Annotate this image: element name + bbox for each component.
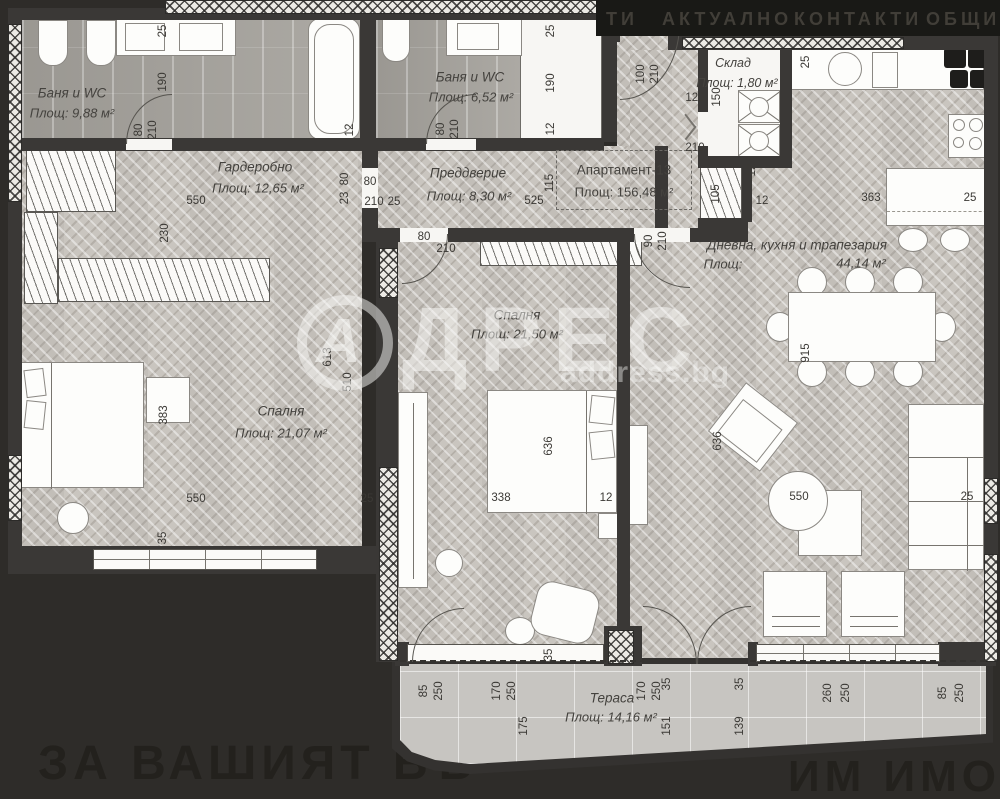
bath2-shower-area: [520, 16, 602, 142]
room-area-bath1: Площ: 9,88 м²: [30, 106, 114, 121]
cooktop-module: [872, 52, 898, 88]
wall: [780, 48, 792, 160]
tv-unit: [627, 425, 648, 525]
lounge-chair: [763, 571, 827, 637]
room-area-terrace: Площ: 14,16 м²: [565, 710, 657, 725]
nav-item-partial[interactable]: ТИ: [606, 9, 638, 30]
window-mullion: [895, 645, 896, 661]
stool: [435, 549, 463, 577]
window-mullion: [261, 550, 262, 569]
terrace-floor: [400, 664, 986, 764]
bed: [20, 362, 144, 488]
closet-long-rack: [58, 258, 270, 302]
bed-line: [51, 363, 52, 489]
wall: [742, 166, 752, 222]
drum: [749, 97, 769, 117]
room-label-bath1: Баня и WC: [38, 86, 106, 101]
pillow: [589, 430, 616, 460]
room-label-living: Дневна, кухня и трапезария: [707, 238, 887, 253]
fridge-icon: [944, 48, 966, 68]
sofa-line: [909, 457, 985, 458]
toilet: [38, 20, 68, 66]
shaft-hatch: [984, 554, 998, 662]
site-nav: ТИ АКТУАЛНО КОНТАКТИ ОБЩИ У: [596, 0, 1000, 36]
apartment-area: Площ: 156,48 м²: [575, 185, 674, 200]
shaft-hatch: [379, 248, 398, 298]
toilet: [382, 18, 410, 62]
pillow: [589, 395, 616, 425]
vanity-double: [116, 16, 236, 56]
shaft-hatch: [984, 478, 998, 524]
apartment-summary-box: [556, 150, 692, 210]
island-line: [887, 211, 997, 212]
shaft-hatch: [8, 455, 22, 521]
window: [93, 549, 317, 570]
nav-item-kontakti[interactable]: КОНТАКТИ: [794, 9, 922, 30]
window-mullion: [149, 550, 150, 569]
floorplan-page: ЗА ВАШИЯТ БЪ ИМ ИМОТ!: [0, 0, 1000, 799]
sofa-line: [909, 501, 985, 502]
apartment-name: Апартамент-13: [577, 163, 672, 178]
room-label-wardrobe: Гардеробно: [218, 160, 292, 175]
kitchen-island: [886, 168, 996, 226]
room-label-terrace: Тераса: [590, 691, 635, 706]
bathtub: [308, 18, 360, 140]
bar-stool: [898, 228, 928, 252]
sink-basin: [179, 23, 223, 51]
room-label-bedroom1: Спалня: [258, 404, 305, 419]
sofa: [908, 404, 984, 570]
wall: [360, 8, 376, 148]
burner: [953, 137, 964, 148]
wall: [698, 218, 748, 230]
shaft-hatch: [682, 37, 904, 49]
fridge-icon: [950, 70, 968, 88]
room-area-hall: Площ: 8,30 м²: [427, 189, 511, 204]
bar-stool: [940, 228, 970, 252]
dimension-label: 25: [361, 493, 374, 505]
closet-unit: [24, 212, 58, 304]
sink-basin: [125, 23, 165, 51]
pillow: [23, 368, 46, 398]
wall: [22, 138, 604, 151]
washing-machine: [738, 90, 780, 123]
room-label-bedroom2: Спалня: [494, 308, 541, 323]
shaft-hatch: [379, 467, 398, 661]
shaft-hatch: [165, 0, 610, 14]
room-area-living-value: 44,14 м²: [836, 256, 885, 271]
sofa-back-line: [967, 457, 968, 571]
stove: [948, 114, 986, 158]
window-mullion: [205, 550, 206, 569]
window-mullion: [803, 645, 804, 661]
dining-table: [788, 292, 936, 362]
burner: [953, 119, 965, 131]
washing-machine: [738, 124, 780, 157]
chair-line: [772, 626, 820, 627]
nav-item-aktualno[interactable]: АКТУАЛНО: [662, 9, 792, 30]
wardrobe-strip: [398, 392, 428, 588]
kitchen-sink: [828, 52, 862, 86]
closet-rack: [26, 150, 116, 212]
lounge-chair: [841, 571, 905, 637]
window-mullion: [849, 645, 850, 661]
burner: [969, 118, 983, 132]
wall: [602, 18, 617, 142]
room-area-wardrobe: Площ: 12,65 м²: [212, 181, 304, 196]
coffee-table: [768, 471, 828, 531]
room-label-hall: Преддверие: [430, 166, 506, 181]
chair-line: [772, 616, 820, 617]
chair-line: [850, 616, 898, 617]
wall: [448, 228, 634, 242]
vanity: [446, 16, 522, 56]
stool: [57, 502, 89, 534]
chair-line: [850, 626, 898, 627]
drum: [749, 131, 769, 151]
bed-line: [586, 391, 587, 514]
room-area-bedroom1: Площ: 21,07 м²: [235, 426, 327, 441]
room-area-bath2: Площ: 6,52 м²: [429, 90, 513, 105]
closet-105: [700, 166, 742, 222]
door-opening: [362, 168, 378, 208]
bidet: [86, 20, 116, 66]
sofa-line: [909, 545, 985, 546]
bed: [487, 390, 617, 513]
sink-basin: [457, 23, 499, 50]
room-area-storage: Площ: 1,80 м²: [696, 76, 777, 90]
nav-item-obshti[interactable]: ОБЩИ У: [926, 9, 1000, 30]
shaft-hatch: [8, 24, 22, 202]
room-label-bath2: Баня и WC: [436, 70, 504, 85]
pillow: [24, 400, 47, 430]
room-label-storage: Склад: [715, 56, 751, 70]
burner: [969, 137, 982, 150]
bathtub-inner: [314, 24, 354, 134]
wall: [362, 228, 400, 242]
shaft-hatch: [608, 630, 634, 664]
room-area-living-label: Площ:: [704, 257, 743, 272]
door-opening: [698, 112, 708, 146]
slogan-right: ИМ ИМОТ!: [788, 752, 1000, 799]
room-area-bedroom2: Площ: 21,50 м²: [471, 327, 563, 342]
wall: [617, 242, 630, 632]
nightstand: [146, 377, 190, 423]
wardrobe-rod: [413, 403, 414, 579]
window-line: [757, 653, 939, 654]
